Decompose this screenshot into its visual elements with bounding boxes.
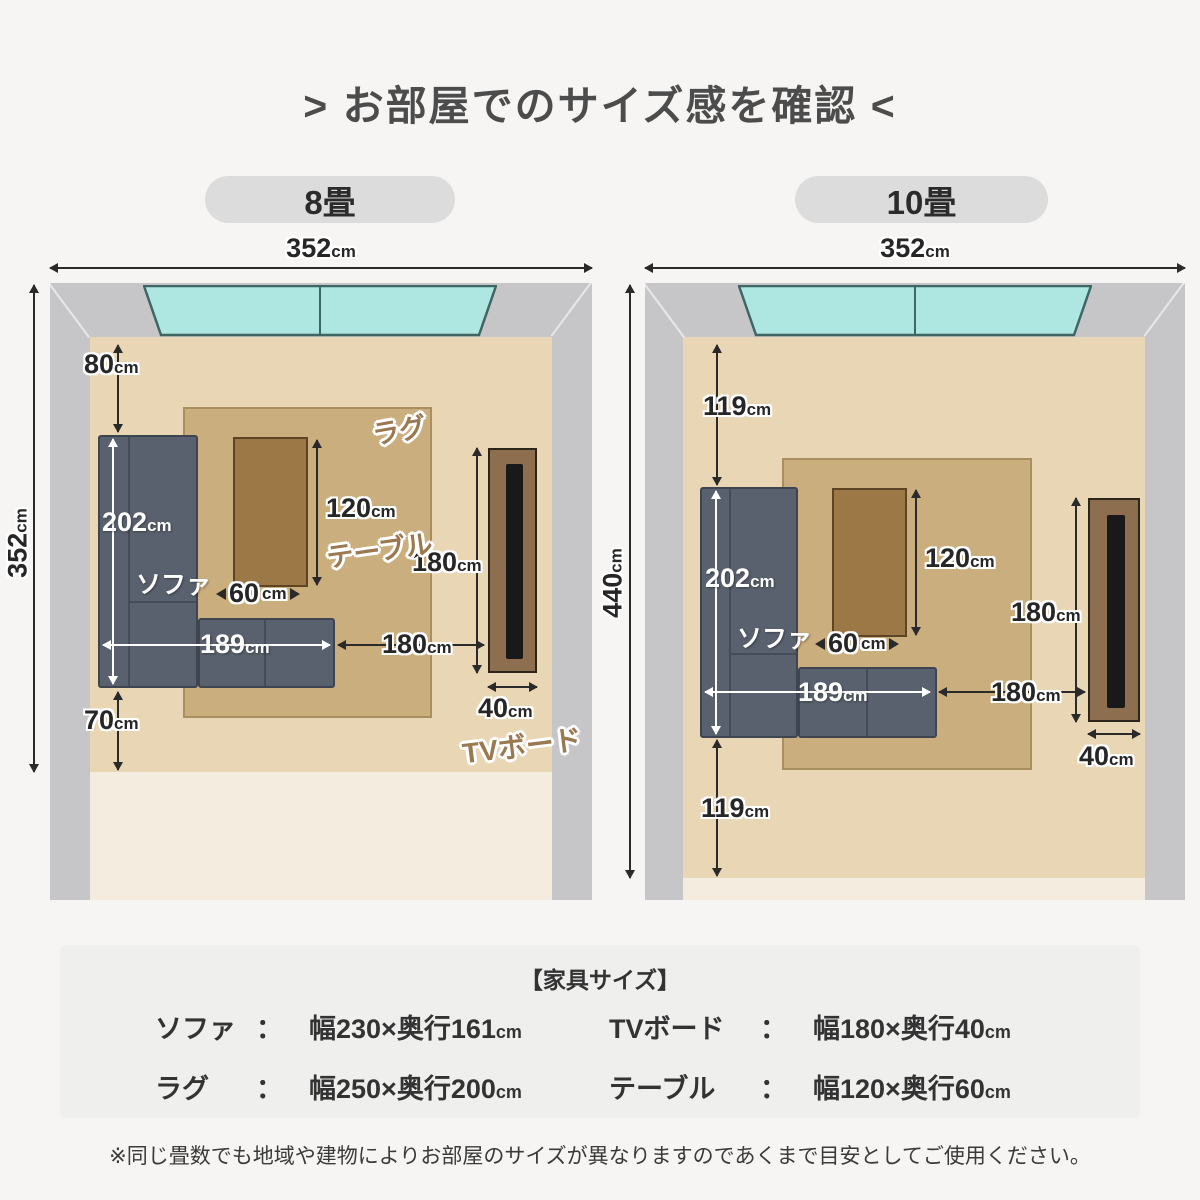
room-8-tatami: 352cm 352cm 80cm 202cm ソファ 189cm 180cm 1…: [50, 283, 592, 900]
dim-tv-depth: 40cm: [478, 695, 533, 722]
tv-screen: [506, 464, 523, 659]
dim-tv-distance: 180cm: [382, 631, 452, 658]
dim-table-length: 120cm: [326, 495, 396, 522]
arrow-room-depth: [629, 285, 631, 878]
furniture-label: テーブル：: [609, 1067, 787, 1106]
furniture-value: 幅120×奥行60cm: [813, 1067, 1045, 1106]
furniture-size-row: ラグ： 幅250×奥行200cm テーブル： 幅120×奥行60cm: [60, 1067, 1140, 1106]
dim-table-width: 60cm: [815, 630, 899, 657]
window: [738, 285, 1092, 337]
furniture-size-panel: 【家具サイズ】 ソファ： 幅230×奥行161cm TVボード： 幅180×奥行…: [60, 945, 1140, 1118]
dim-top-gap: 80cm: [84, 351, 139, 378]
dim-sofa-depth: 202cm: [102, 509, 172, 536]
dim-sofa-width: 189cm: [200, 631, 270, 658]
arrowhead-right: [290, 588, 300, 600]
arrow-room-width: [645, 267, 1185, 269]
furniture-value: 幅230×奥行161cm: [309, 1007, 567, 1046]
panel-heading: 【家具サイズ】: [60, 961, 1140, 995]
arrow-sofa-depth: [715, 491, 717, 734]
sofa-label: ソファ: [136, 573, 211, 598]
arrowhead-left: [815, 638, 825, 650]
furniture-value: 幅180×奥行40cm: [813, 1007, 1045, 1046]
badge-8-tatami: 8畳: [205, 176, 455, 223]
dim-room-width: 352cm: [880, 235, 950, 262]
arrow-room-depth: [33, 285, 35, 772]
arrow-table-length: [316, 440, 318, 585]
dim-tv-depth: 40cm: [1079, 743, 1134, 770]
dim-tv-distance: 180cm: [991, 679, 1061, 706]
dim-room-depth: 352cm: [5, 508, 32, 578]
dim-bottom-gap: 70cm: [84, 707, 139, 734]
arrow-room-width: [50, 267, 592, 269]
furniture-label: ラグ：: [155, 1067, 283, 1106]
dim-room-depth: 440cm: [600, 548, 627, 618]
sofa-seam: [729, 489, 731, 736]
dim-sofa-width: 189cm: [798, 679, 868, 706]
window: [143, 285, 497, 337]
arrow-tv-depth: [1088, 733, 1140, 735]
disclaimer-note: ※同じ畳数でも地域や建物によりお部屋のサイズが異なりますのであくまで目安としてご…: [0, 1140, 1200, 1170]
furniture-size-row: ソファ： 幅230×奥行161cm TVボード： 幅180×奥行40cm: [60, 1007, 1140, 1046]
sofa-seam: [731, 653, 796, 655]
page-title: > お部屋でのサイズ感を確認 <: [0, 72, 1200, 132]
wall-right: [552, 283, 592, 900]
furniture-label: ソファ：: [155, 1007, 283, 1046]
dim-room-width: 352cm: [286, 235, 356, 262]
floor-extension: [683, 878, 1145, 900]
badge-10-tatami: 10畳: [795, 176, 1048, 223]
sofa-seam: [130, 601, 196, 603]
room-size-infographic: > お部屋でのサイズ感を確認 < 8畳 10畳 352cm 352cm 80cm: [0, 0, 1200, 1200]
wall-right: [1145, 283, 1185, 900]
dim-sofa-depth: 202cm: [705, 565, 775, 592]
furniture-value: 幅250×奥行200cm: [309, 1067, 567, 1106]
table: [233, 437, 308, 587]
tv-board: [1088, 498, 1140, 722]
wall-left: [645, 283, 683, 900]
furniture-label: TVボード：: [609, 1007, 787, 1046]
dim-tv-length: 180cm: [1011, 599, 1081, 626]
dim-table-width: 60cm: [216, 580, 300, 607]
room-10-tatami: 352cm 440cm 119cm 202cm ソファ 189cm 180cm …: [645, 283, 1185, 900]
table: [832, 488, 907, 637]
arrow-table-length: [915, 490, 917, 635]
tv-screen: [1107, 515, 1125, 708]
arrowhead-left: [216, 588, 226, 600]
floor-extension: [90, 772, 552, 900]
sofa-seam: [128, 437, 130, 686]
arrowhead-right: [889, 638, 899, 650]
sofa-label: ソファ: [737, 627, 812, 652]
dim-bottom-gap: 119cm: [701, 795, 769, 822]
arrow-tv-depth: [488, 686, 537, 688]
furniture-size-rows: ソファ： 幅230×奥行161cm TVボード： 幅180×奥行40cm ラグ：…: [60, 1007, 1140, 1127]
dim-table-length: 120cm: [925, 545, 995, 572]
tv-board: [488, 448, 537, 673]
arrow-sofa-depth: [112, 439, 114, 684]
dim-top-gap: 119cm: [703, 393, 771, 420]
